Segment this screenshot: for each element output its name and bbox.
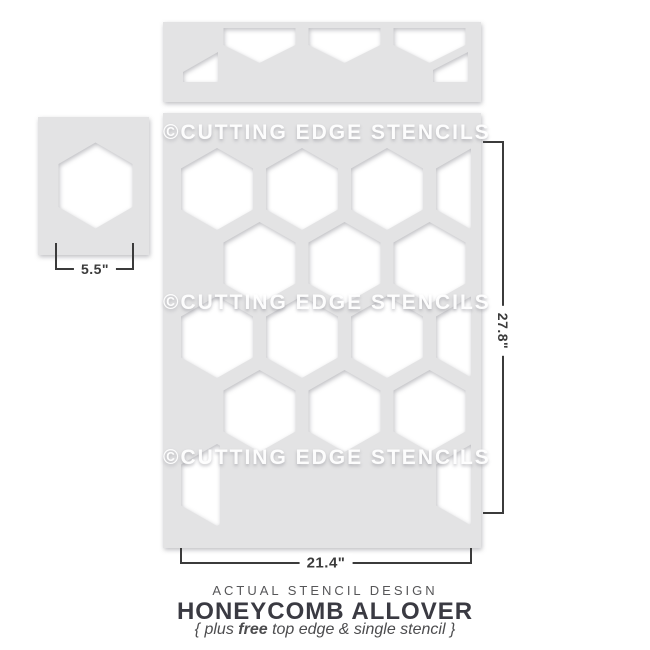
caption-tagline: { plus free top edge & single stencil }: [0, 621, 650, 639]
single-width-dimension-label: 5.5": [74, 260, 116, 278]
caption-kicker: ACTUAL STENCIL DESIGN: [0, 583, 650, 598]
main-stencil-sheet: [163, 113, 481, 548]
tagline-prefix: { plus: [195, 621, 239, 638]
tagline-suffix: top edge & single stencil }: [268, 621, 456, 638]
main-width-dimension-label: 21.4": [300, 554, 353, 573]
main-height-dimension-label: 27.8": [494, 306, 512, 356]
stencil-graphics: [0, 0, 650, 650]
tagline-free: free: [238, 621, 267, 638]
single-stencil-sheet: [38, 117, 149, 255]
product-diagram: ©CUTTING EDGE STENCILS ©CUTTING EDGE STE…: [0, 0, 650, 650]
top-edge-stencil-sheet: [163, 22, 481, 102]
